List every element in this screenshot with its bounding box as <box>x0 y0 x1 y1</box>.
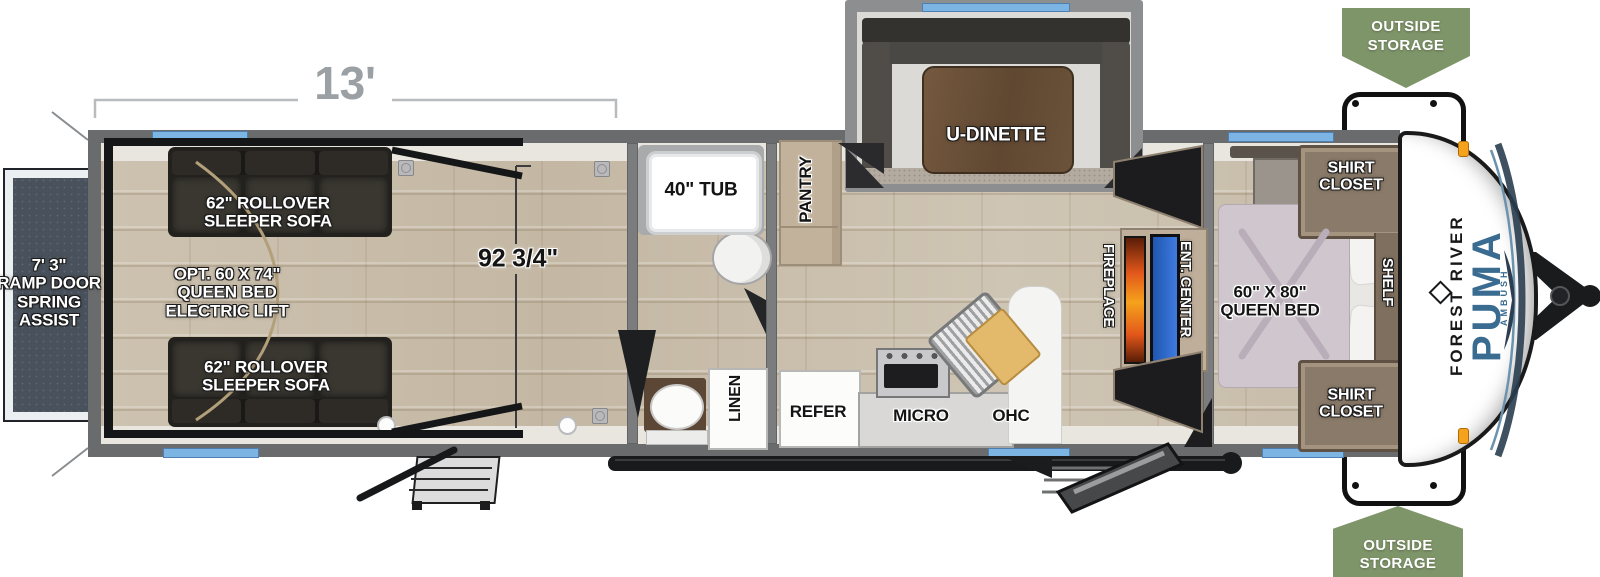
ramp-door-label: 7' 3" RAMP DOOR SPRING ASSIST <box>0 256 101 329</box>
brand-forest-river: FOREST RIVER <box>1448 180 1466 410</box>
ent-center-label: ENT. CENTER <box>1177 241 1193 337</box>
shelf-label: SHELF <box>1379 258 1395 306</box>
opt-queen-bed-label: OPT. 60 X 74" QUEEN BED ELECTRIC LIFT <box>166 265 289 320</box>
tub-label: 40" TUB <box>664 181 737 202</box>
u-dinette-label: U-DINETTE <box>946 126 1046 147</box>
brand-ambush: AMBUSH <box>1500 262 1510 332</box>
sofa-top-label: 62" ROLLOVER SLEEPER SOFA <box>204 195 332 232</box>
linen-label: LINEN <box>727 375 744 422</box>
floorplan-canvas: FOREST RIVER PUMA AMBUSH <box>0 0 1600 577</box>
shirt-closet-top-label: SHIRT CLOSET <box>1319 160 1383 195</box>
sofa-bottom-label: 62" ROLLOVER SLEEPER SOFA <box>202 359 330 396</box>
garage-width-dimension: 92 3/4" <box>478 246 558 273</box>
fireplace-label: FIREPLACE <box>1100 244 1116 327</box>
ohc-label: OHC <box>992 407 1029 425</box>
garage-length-dimension: 13' <box>314 59 376 109</box>
pantry-label: PANTRY <box>797 156 815 223</box>
clearance-light <box>1458 428 1469 444</box>
micro-label: MICRO <box>893 407 949 425</box>
clearance-light <box>1458 141 1469 157</box>
refer-label: REFER <box>790 403 847 421</box>
shirt-closet-bottom-label: SHIRT CLOSET <box>1319 387 1383 422</box>
queen-bed-label: 60" X 80" QUEEN BED <box>1220 284 1319 321</box>
